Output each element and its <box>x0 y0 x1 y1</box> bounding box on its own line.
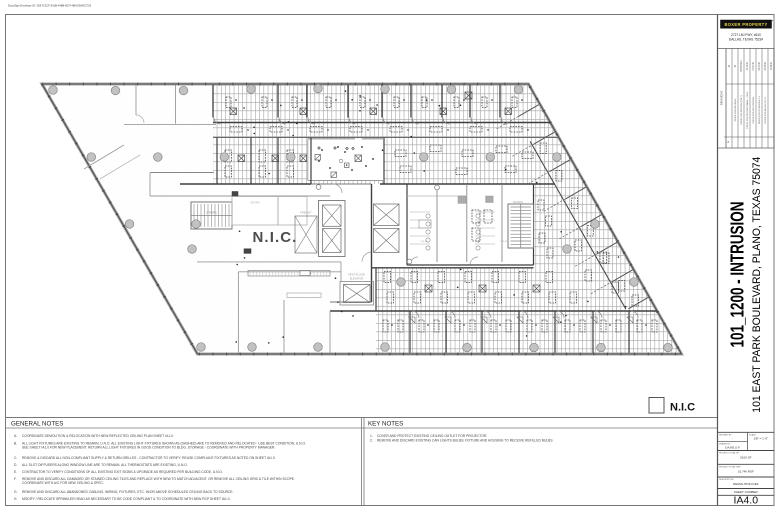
svg-text:TOILET: TOILET <box>500 241 508 243</box>
svg-text:PROJECT TOTAL RSF:: PROJECT TOTAL RSF: <box>719 465 741 468</box>
svg-text:REMOVE AND DISCARD EXISTING CA: REMOVE AND DISCARD EXISTING CAN LIGHTS B… <box>377 439 554 443</box>
svg-text:PRICE FOR PRICING (PNLT): PRICE FOR PRICING (PNLT) <box>741 95 743 124</box>
svg-text:08/26/2021: 08/26/2021 <box>741 60 743 72</box>
svg-text:10/04/21: 10/04/21 <box>771 61 773 71</box>
svg-text:101 EAST PARK BOULEVARD, PLANO: 101 EAST PARK BOULEVARD, PLANO, TEXAS 75… <box>751 157 763 413</box>
svg-text:D.: D. <box>14 463 17 467</box>
svg-text:1.: 1. <box>370 434 373 438</box>
svg-text:DALLAS, TEXAS 75234: DALLAS, TEXAS 75234 <box>729 37 763 41</box>
svg-text:PROJECT TOTAL SF:: PROJECT TOTAL SF: <box>719 451 740 454</box>
svg-text:FREIGHT: FREIGHT <box>300 211 312 215</box>
svg-text:DEMOLITION REF: DEMOLITION REF <box>733 482 759 486</box>
svg-text:F.: F. <box>14 477 17 481</box>
svg-text:PRICE FOR PRICING PANEL - ONLY: PRICE FOR PRICING PANEL - ONLY <box>746 91 749 128</box>
svg-text:10,746 RSF: 10,746 RSF <box>738 469 754 473</box>
svg-text:REVISIONS: REVISIONS <box>720 91 724 105</box>
svg-text:G.: G. <box>14 490 18 494</box>
svg-text:-: - <box>732 438 733 441</box>
svg-text:ELEVATOR: ELEVATOR <box>350 277 364 281</box>
svg-text:SEE SHEET IA1.0 FOR NEW PLACEM: SEE SHEET IA1.0 FOR NEW PLACEMENT. RETUR… <box>22 446 275 450</box>
svg-text:STAIRS: STAIRS <box>206 211 217 215</box>
svg-text:JP: JP <box>735 64 737 67</box>
svg-text:N.I.C.: N.I.C. <box>253 229 298 246</box>
svg-text:MODIFY / RELOCATE SPRINKLER HE: MODIFY / RELOCATE SPRINKLER HEAD AS NECE… <box>22 497 231 501</box>
svg-text:KEY NOTES: KEY NOTES <box>368 421 403 428</box>
svg-text:PRICE FOR INTERIORS 2.1: PRICE FOR INTERIORS 2.1 <box>759 95 761 124</box>
svg-text:SHEET NUMBER: SHEET NUMBER <box>734 490 759 494</box>
svg-text:09/08/21: 09/08/21 <box>765 61 767 71</box>
svg-text:COORDINATE WITH A/C FOR NEW CE: COORDINATE WITH A/C FOR NEW CEILING & SP… <box>22 481 104 485</box>
svg-text:B.: B. <box>14 442 17 446</box>
svg-text:1/8" = 1'-0": 1/8" = 1'-0" <box>753 436 768 440</box>
svg-text:DESCRIPTION:: DESCRIPTION: <box>719 479 734 481</box>
svg-text:08/13/21: 08/13/21 <box>759 61 761 71</box>
svg-text:PENT FLOOR: PENT FLOOR <box>348 273 365 277</box>
svg-text:REVISED BY:: REVISED BY: <box>719 434 732 436</box>
svg-text:JP: JP <box>729 64 731 67</box>
svg-text:CONTRACTOR TO VERIFY CONDITION: CONTRACTOR TO VERIFY CONDITIONS OF ALL E… <box>22 470 223 474</box>
svg-text:C.: C. <box>14 456 17 460</box>
svg-text:0100 SF: 0100 SF <box>740 456 752 460</box>
svg-text:101_1200 - INTRUSION: 101_1200 - INTRUSION <box>727 202 748 348</box>
svg-text:REMOVE & DISCARD ALL NON-COMPL: REMOVE & DISCARD ALL NON-COMPLIANT SUPPL… <box>22 456 276 460</box>
svg-text:REMOVE AND DISCARD ALL ABANDON: REMOVE AND DISCARD ALL ABANDONED CABLING… <box>22 490 234 494</box>
svg-text:GENERAL NOTES: GENERAL NOTES <box>11 421 63 428</box>
svg-text:ALL SLOT DIFFUSERS ALONG WINDO: ALL SLOT DIFFUSERS ALONG WINDOW LINE ARE… <box>22 463 188 467</box>
svg-text:07/01/21: 07/01/21 <box>753 61 755 71</box>
svg-text:2727 LBJ FWY, #610: 2727 LBJ FWY, #610 <box>731 33 761 37</box>
svg-text:PRICE FOR REVIEWS: PRICE FOR REVIEWS <box>735 98 737 121</box>
svg-text:PRICE FOR REV PRICING: PRICE FOR REV PRICING <box>753 96 755 123</box>
svg-text:10/19/21: 10/19/21 <box>747 61 749 71</box>
svg-text:IA4.0: IA4.0 <box>734 495 759 507</box>
svg-text:PRICE FOR BULLETIN 2.1: PRICE FOR BULLETIN 2.1 <box>765 96 767 123</box>
svg-text:A.: A. <box>14 434 17 438</box>
svg-text:DocuSign Envelope ID: 31B7C3CF: DocuSign Envelope ID: 31B7C3CF-910B-44B8… <box>8 3 92 7</box>
svg-text:DANILO P: DANILO P <box>725 446 740 450</box>
svg-text:COORDINATE DEMOLITION & RELOCA: COORDINATE DEMOLITION & RELOCATION WITH … <box>22 434 174 438</box>
svg-text:2.: 2. <box>370 439 373 443</box>
svg-text:H.: H. <box>14 497 17 501</box>
svg-text:E.: E. <box>14 470 17 474</box>
svg-text:N.I.C: N.I.C <box>670 402 695 414</box>
svg-text:COVER AND PROTECT EXISTING CEI: COVER AND PROTECT EXISTING CEILING OUTLE… <box>377 434 487 438</box>
svg-text:BOXER PROPERTY: BOXER PROPERTY <box>724 22 767 27</box>
svg-text:STAIRS: STAIRS <box>513 200 523 204</box>
svg-text:MC RM: MC RM <box>251 201 260 205</box>
svg-text:TOILET: TOILET <box>420 241 428 243</box>
